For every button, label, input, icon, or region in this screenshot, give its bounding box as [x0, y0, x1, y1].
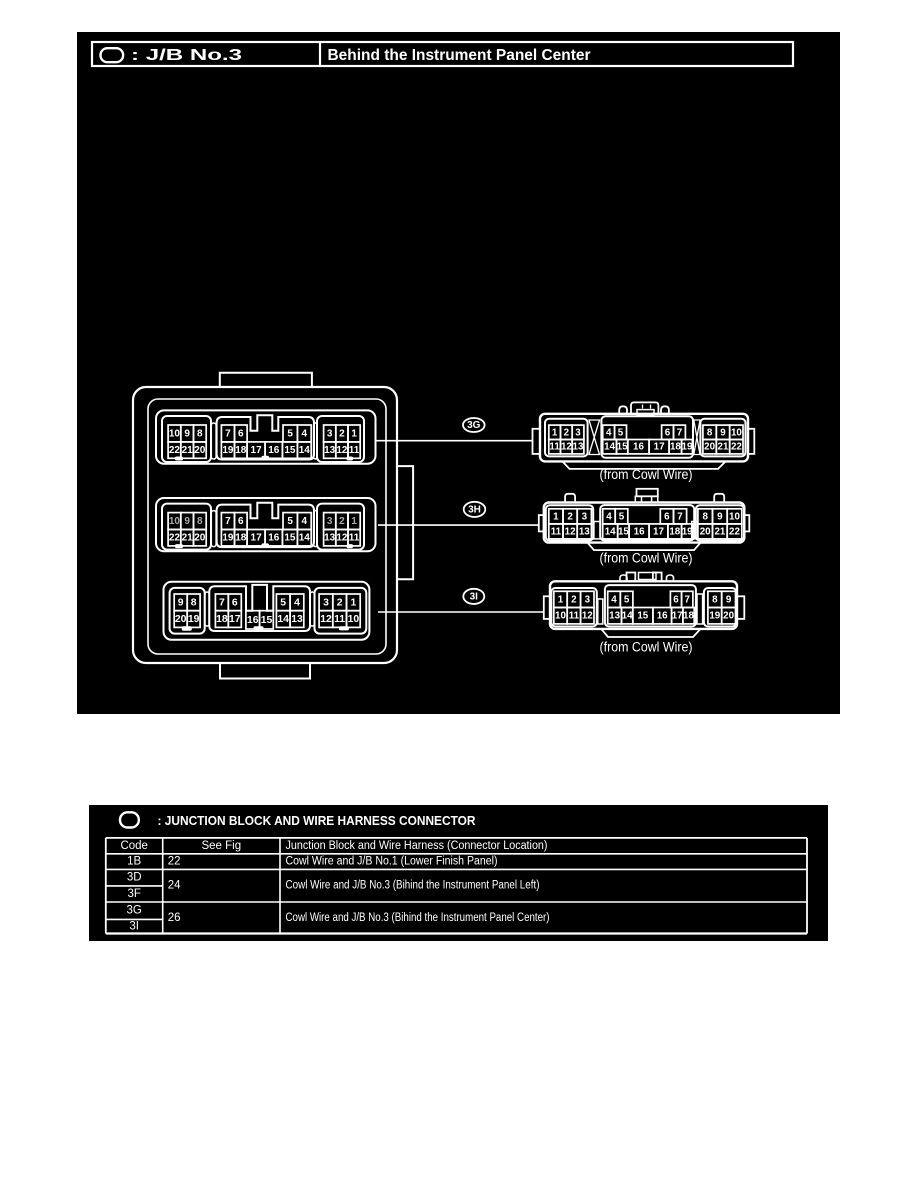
svg-text:18: 18 — [235, 445, 247, 456]
svg-text:13: 13 — [291, 614, 303, 625]
svg-text:17: 17 — [251, 533, 263, 544]
svg-text:15: 15 — [284, 445, 296, 456]
svg-text:22: 22 — [729, 526, 740, 537]
svg-text:18: 18 — [235, 533, 247, 544]
svg-text:18: 18 — [670, 442, 681, 453]
svg-text:19: 19 — [682, 442, 693, 453]
svg-text:5: 5 — [287, 428, 293, 439]
svg-text:14: 14 — [605, 526, 616, 537]
svg-text:10: 10 — [729, 511, 740, 522]
svg-text:16: 16 — [633, 442, 644, 453]
svg-text:3H: 3H — [468, 504, 481, 515]
svg-text:8: 8 — [712, 594, 718, 605]
svg-text:14: 14 — [299, 533, 311, 544]
svg-text:17: 17 — [653, 526, 664, 537]
svg-text:16: 16 — [247, 615, 259, 626]
svg-text:: JUNCTION BLOCK AND WIRE HARN: : JUNCTION BLOCK AND WIRE HARNESS CONNEC… — [158, 813, 477, 828]
svg-text:1: 1 — [351, 516, 357, 527]
svg-text:19: 19 — [709, 611, 720, 622]
svg-text:18: 18 — [669, 526, 680, 537]
svg-text:7: 7 — [225, 428, 231, 439]
svg-text:10: 10 — [731, 427, 742, 438]
svg-text:15: 15 — [284, 533, 296, 544]
svg-text:4: 4 — [294, 597, 300, 608]
svg-text:10: 10 — [555, 611, 566, 622]
svg-text:22: 22 — [169, 533, 181, 544]
svg-text:20: 20 — [194, 445, 206, 456]
svg-text:24: 24 — [168, 880, 181, 892]
svg-text:1: 1 — [351, 428, 357, 439]
svg-text:7: 7 — [219, 597, 225, 608]
svg-text:12: 12 — [336, 445, 348, 456]
svg-text:11: 11 — [349, 445, 360, 456]
svg-text:4: 4 — [302, 428, 308, 439]
svg-text:14: 14 — [299, 445, 311, 456]
svg-text:14: 14 — [622, 611, 633, 622]
svg-text:16: 16 — [634, 526, 645, 537]
svg-text:21: 21 — [182, 445, 194, 456]
svg-text:11: 11 — [349, 533, 360, 544]
svg-text:12: 12 — [336, 533, 348, 544]
svg-text:19: 19 — [188, 614, 200, 625]
svg-text:9: 9 — [720, 427, 726, 438]
svg-text:(from Cowl Wire): (from Cowl Wire) — [600, 467, 693, 482]
svg-text:22: 22 — [731, 442, 742, 453]
svg-text:2: 2 — [567, 511, 573, 522]
svg-text:17: 17 — [251, 445, 263, 456]
svg-text:12: 12 — [582, 611, 593, 622]
svg-text:17: 17 — [654, 442, 665, 453]
svg-text:8: 8 — [707, 427, 713, 438]
svg-text:6: 6 — [232, 597, 238, 608]
svg-text:16: 16 — [268, 445, 280, 456]
svg-text:14: 14 — [604, 442, 615, 453]
svg-text:9: 9 — [717, 511, 723, 522]
svg-text:3: 3 — [585, 594, 591, 605]
svg-text:5: 5 — [287, 516, 293, 527]
svg-text:3: 3 — [327, 428, 333, 439]
svg-text:11: 11 — [569, 611, 580, 622]
svg-text:(from Cowl Wire): (from Cowl Wire) — [600, 640, 693, 655]
svg-text:19: 19 — [222, 533, 234, 544]
svg-text:3: 3 — [582, 511, 588, 522]
svg-text:6: 6 — [664, 511, 670, 522]
svg-text:4: 4 — [611, 594, 617, 605]
svg-text:14: 14 — [277, 614, 289, 625]
svg-text:19: 19 — [222, 445, 234, 456]
svg-text:21: 21 — [714, 526, 725, 537]
svg-text:16: 16 — [268, 533, 280, 544]
svg-text:8: 8 — [197, 516, 203, 527]
svg-text:3: 3 — [575, 427, 581, 438]
svg-text:8: 8 — [191, 597, 197, 608]
svg-text:6: 6 — [665, 427, 671, 438]
svg-text:13: 13 — [324, 445, 336, 456]
svg-text:1B: 1B — [127, 856, 141, 868]
svg-text:11: 11 — [334, 614, 345, 625]
svg-text:12: 12 — [561, 442, 572, 453]
svg-text:26: 26 — [168, 912, 181, 924]
svg-text:5: 5 — [624, 594, 630, 605]
svg-text:3F: 3F — [127, 888, 140, 900]
svg-text:15: 15 — [617, 442, 628, 453]
svg-text:Cowl Wire and J/B No.3 (Bihind: Cowl Wire and J/B No.3 (Bihind the Instr… — [286, 880, 540, 892]
svg-text:9: 9 — [726, 594, 732, 605]
svg-text:13: 13 — [579, 526, 590, 537]
svg-text:3: 3 — [327, 516, 333, 527]
svg-text:13: 13 — [573, 442, 584, 453]
svg-text:1: 1 — [553, 511, 559, 522]
svg-text:21: 21 — [718, 442, 729, 453]
svg-text:11: 11 — [549, 442, 560, 453]
svg-text:22: 22 — [169, 445, 181, 456]
svg-text:Cowl Wire and J/B No.3 (Bihind: Cowl Wire and J/B No.3 (Bihind the Instr… — [286, 912, 550, 924]
svg-text:3G: 3G — [127, 905, 142, 917]
svg-text:17: 17 — [229, 614, 241, 625]
svg-text:7: 7 — [684, 594, 690, 605]
svg-text:11: 11 — [551, 526, 562, 537]
svg-text:7: 7 — [677, 427, 683, 438]
svg-text:18: 18 — [216, 614, 228, 625]
svg-text:4: 4 — [606, 427, 612, 438]
svg-text:10: 10 — [169, 428, 181, 439]
svg-text:5: 5 — [618, 427, 624, 438]
svg-text:3I: 3I — [129, 921, 139, 933]
svg-text:12: 12 — [320, 614, 332, 625]
svg-text:2: 2 — [337, 597, 343, 608]
svg-text:Cowl Wire and J/B No.1 (Lower: Cowl Wire and J/B No.1 (Lower Finish Pan… — [286, 856, 498, 868]
svg-text:3G: 3G — [467, 420, 481, 431]
svg-text:13: 13 — [609, 611, 620, 622]
svg-text:1: 1 — [558, 594, 564, 605]
svg-text:9: 9 — [184, 428, 190, 439]
svg-text:1: 1 — [351, 597, 357, 608]
svg-text:3D: 3D — [127, 872, 142, 884]
svg-text:10: 10 — [169, 516, 181, 527]
svg-text:7: 7 — [677, 511, 683, 522]
svg-text:13: 13 — [324, 533, 336, 544]
svg-text:4: 4 — [606, 511, 612, 522]
svg-text:: J/B No.3: : J/B No.3 — [131, 47, 242, 64]
svg-text:See Fig: See Fig — [201, 840, 241, 852]
svg-text:1: 1 — [552, 427, 558, 438]
svg-text:7: 7 — [225, 516, 231, 527]
svg-text:5: 5 — [619, 511, 625, 522]
svg-text:6: 6 — [238, 516, 244, 527]
svg-text:8: 8 — [702, 511, 708, 522]
svg-text:12: 12 — [565, 526, 576, 537]
svg-text:10: 10 — [348, 614, 360, 625]
svg-text:15: 15 — [637, 611, 648, 622]
svg-text:20: 20 — [700, 526, 711, 537]
svg-text:21: 21 — [182, 533, 194, 544]
svg-text:2: 2 — [339, 428, 345, 439]
svg-text:16: 16 — [657, 611, 668, 622]
svg-text:20: 20 — [704, 442, 715, 453]
svg-text:Behind the Instrument Panel Ce: Behind the Instrument Panel Center — [328, 47, 591, 64]
svg-text:9: 9 — [184, 516, 190, 527]
svg-text:20: 20 — [194, 533, 206, 544]
svg-text:22: 22 — [168, 856, 181, 868]
svg-text:2: 2 — [564, 427, 570, 438]
svg-text:3: 3 — [323, 597, 329, 608]
svg-text:(from Cowl Wire): (from Cowl Wire) — [600, 551, 693, 566]
svg-text:8: 8 — [197, 428, 203, 439]
svg-text:15: 15 — [618, 526, 629, 537]
svg-text:2: 2 — [571, 594, 577, 605]
svg-text:17: 17 — [672, 611, 683, 622]
svg-text:20: 20 — [175, 614, 187, 625]
svg-text:3I: 3I — [470, 591, 479, 602]
svg-text:9: 9 — [178, 597, 184, 608]
svg-text:2: 2 — [339, 516, 345, 527]
svg-text:4: 4 — [302, 516, 308, 527]
svg-text:Code: Code — [120, 840, 148, 852]
svg-text:6: 6 — [238, 428, 244, 439]
svg-text:Junction Block and Wire Harnes: Junction Block and Wire Harness (Connect… — [286, 840, 548, 852]
svg-text:6: 6 — [673, 594, 679, 605]
svg-text:15: 15 — [261, 615, 273, 626]
svg-text:18: 18 — [683, 611, 694, 622]
svg-text:20: 20 — [723, 611, 734, 622]
svg-text:5: 5 — [280, 597, 286, 608]
